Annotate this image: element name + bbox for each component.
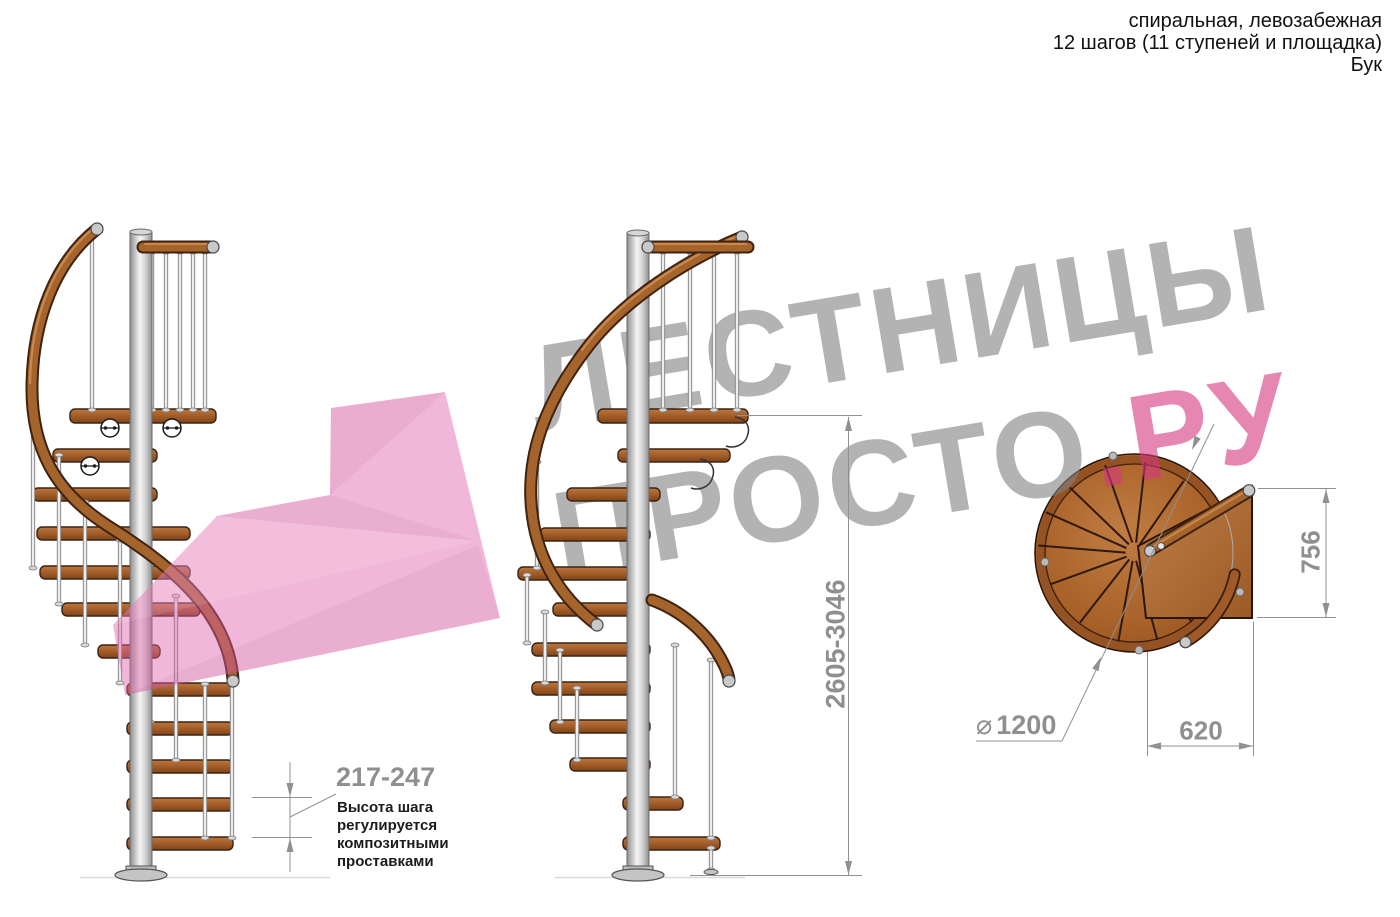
- dimension-platform-depth: 756: [1296, 530, 1327, 573]
- dimension-diameter-value: 1200: [996, 710, 1056, 740]
- drawing-canvas: ЛЕСТНИЦЫ ПРОСТО.РУ: [0, 0, 1400, 917]
- dimension-step-height: 217-247: [336, 762, 435, 793]
- dimension-diameter: ⌀1200: [976, 710, 1056, 741]
- note-line: композитными: [337, 835, 449, 853]
- product-info-material: Бук: [1053, 54, 1382, 76]
- dimension-total-height: 2605-3046: [821, 579, 852, 708]
- dimension-platform-width: 620: [1179, 716, 1222, 747]
- pink-arrow-shape: [113, 392, 500, 695]
- note-line: проставками: [337, 853, 449, 871]
- note-line: регулируется: [337, 817, 449, 835]
- product-info: спиральная, левозабежная 12 шагов (11 ст…: [1053, 10, 1382, 76]
- note-line: Высота шага: [337, 799, 449, 817]
- step-height-note: Высота шага регулируется композитными пр…: [337, 799, 449, 871]
- diameter-icon: ⌀: [976, 710, 992, 740]
- pink-arrow-watermark: [0, 0, 1400, 917]
- product-info-type: спиральная, левозабежная: [1053, 10, 1382, 32]
- product-info-steps: 12 шагов (11 ступеней и площадка): [1053, 32, 1382, 54]
